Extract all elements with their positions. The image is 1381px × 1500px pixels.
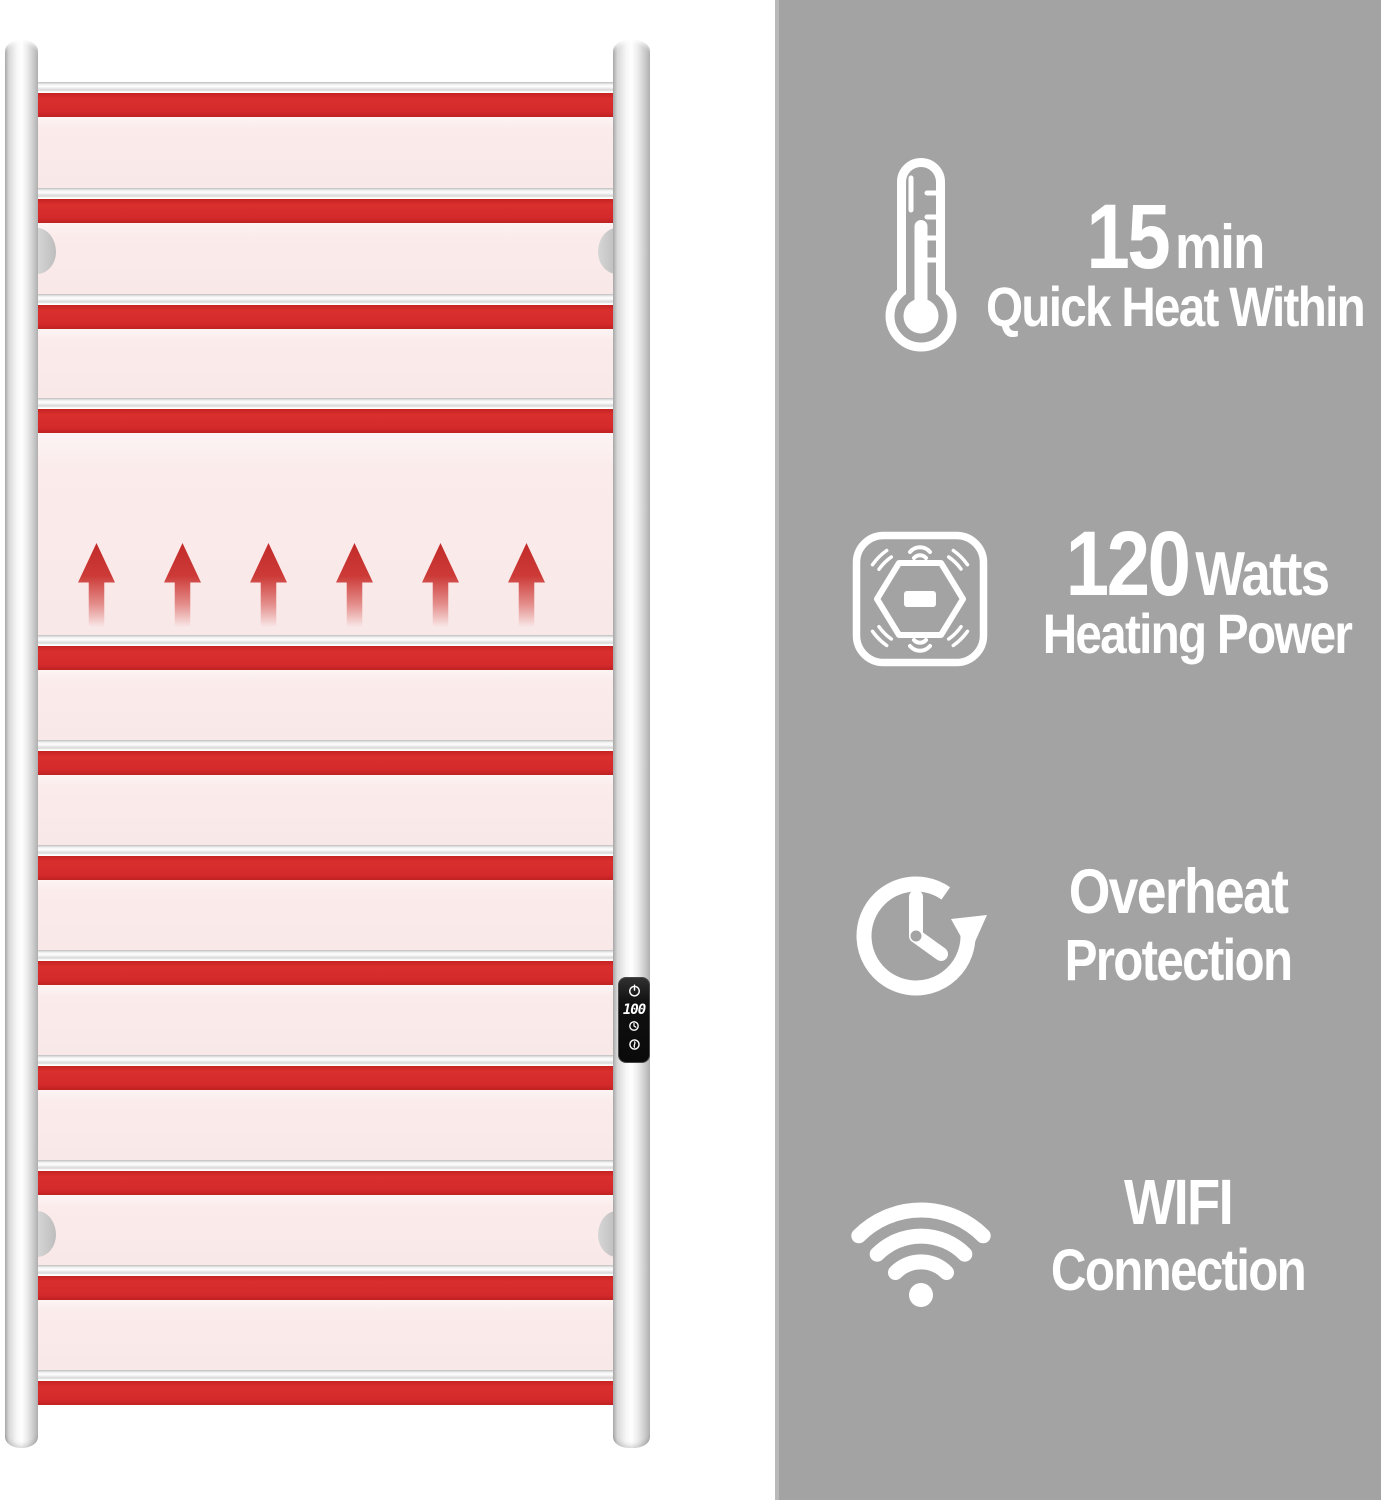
overheat-protection-icon bbox=[848, 852, 994, 1013]
heated-bar bbox=[36, 646, 618, 670]
towel-warmer-image: 100 bbox=[0, 0, 775, 1500]
temperature-display: 100 bbox=[623, 1003, 645, 1017]
power-icon[interactable] bbox=[628, 984, 641, 1002]
towel-bar bbox=[22, 188, 638, 196]
heat-glow-panel bbox=[38, 117, 616, 188]
heated-bar bbox=[36, 305, 618, 329]
feature-overheat: Overheat Protection bbox=[983, 861, 1374, 990]
towel-bar bbox=[22, 740, 638, 748]
towel-bar bbox=[22, 82, 638, 90]
towel-bar bbox=[22, 1055, 638, 1063]
feature-panel: 15min Quick Heat Within bbox=[775, 0, 1381, 1500]
towel-bar bbox=[22, 1265, 638, 1273]
towel-bar bbox=[22, 950, 638, 958]
heat-glow-panel bbox=[38, 1195, 616, 1265]
towel-bar bbox=[22, 1160, 638, 1168]
towel-bar bbox=[22, 398, 638, 406]
control-panel[interactable]: 100 bbox=[618, 977, 650, 1063]
towel-bar bbox=[22, 294, 638, 302]
heated-bar bbox=[36, 1066, 618, 1090]
heat-glow-panel bbox=[38, 985, 616, 1055]
timer-icon[interactable] bbox=[628, 1019, 640, 1037]
heating-power-icon bbox=[852, 531, 988, 672]
heated-bar bbox=[36, 199, 618, 223]
feature-line2: Protection bbox=[983, 932, 1374, 990]
heated-bar bbox=[36, 409, 618, 433]
heat-glow-panel bbox=[38, 223, 616, 294]
heated-bar bbox=[36, 856, 618, 880]
heat-glow-panel bbox=[38, 880, 616, 950]
feature-unit: Watts bbox=[1195, 540, 1328, 609]
heated-bar bbox=[36, 1276, 618, 1300]
towel-bar bbox=[22, 845, 638, 853]
heated-bar bbox=[36, 1381, 618, 1405]
heat-glow-panel bbox=[38, 329, 616, 398]
heat-icon[interactable] bbox=[628, 1038, 641, 1056]
heated-bar bbox=[36, 93, 618, 117]
heated-bar bbox=[36, 751, 618, 775]
product-infographic: 100 15min Quick Heat Within bbox=[0, 0, 1381, 1500]
heat-glow-panel bbox=[38, 775, 616, 845]
feature-label: Quick Heat Within bbox=[980, 279, 1371, 335]
heated-bar bbox=[36, 961, 618, 985]
left-rail bbox=[5, 40, 38, 1448]
wifi-icon bbox=[846, 1188, 996, 1319]
feature-label: Heating Power bbox=[1002, 606, 1381, 662]
feature-line2: Connection bbox=[983, 1242, 1374, 1300]
feature-quick-heat: 15min Quick Heat Within bbox=[980, 191, 1371, 335]
thermometer-icon bbox=[883, 158, 959, 359]
towel-bar bbox=[22, 635, 638, 643]
feature-line1: Overheat bbox=[983, 861, 1374, 924]
feature-heating-power: 120Watts Heating Power bbox=[1002, 518, 1381, 662]
heat-glow-panel bbox=[38, 1090, 616, 1160]
heat-glow-panel bbox=[38, 670, 616, 740]
heat-glow-panel bbox=[38, 1300, 616, 1370]
feature-value: 120 bbox=[1066, 513, 1189, 615]
feature-unit: min bbox=[1175, 213, 1264, 282]
heated-bar bbox=[36, 1171, 618, 1195]
feature-wifi: WIFI Connection bbox=[983, 1170, 1374, 1300]
feature-value: 15 bbox=[1086, 186, 1168, 288]
right-rail bbox=[613, 40, 650, 1448]
towel-bar bbox=[22, 1370, 638, 1378]
feature-line1: WIFI bbox=[983, 1170, 1374, 1234]
